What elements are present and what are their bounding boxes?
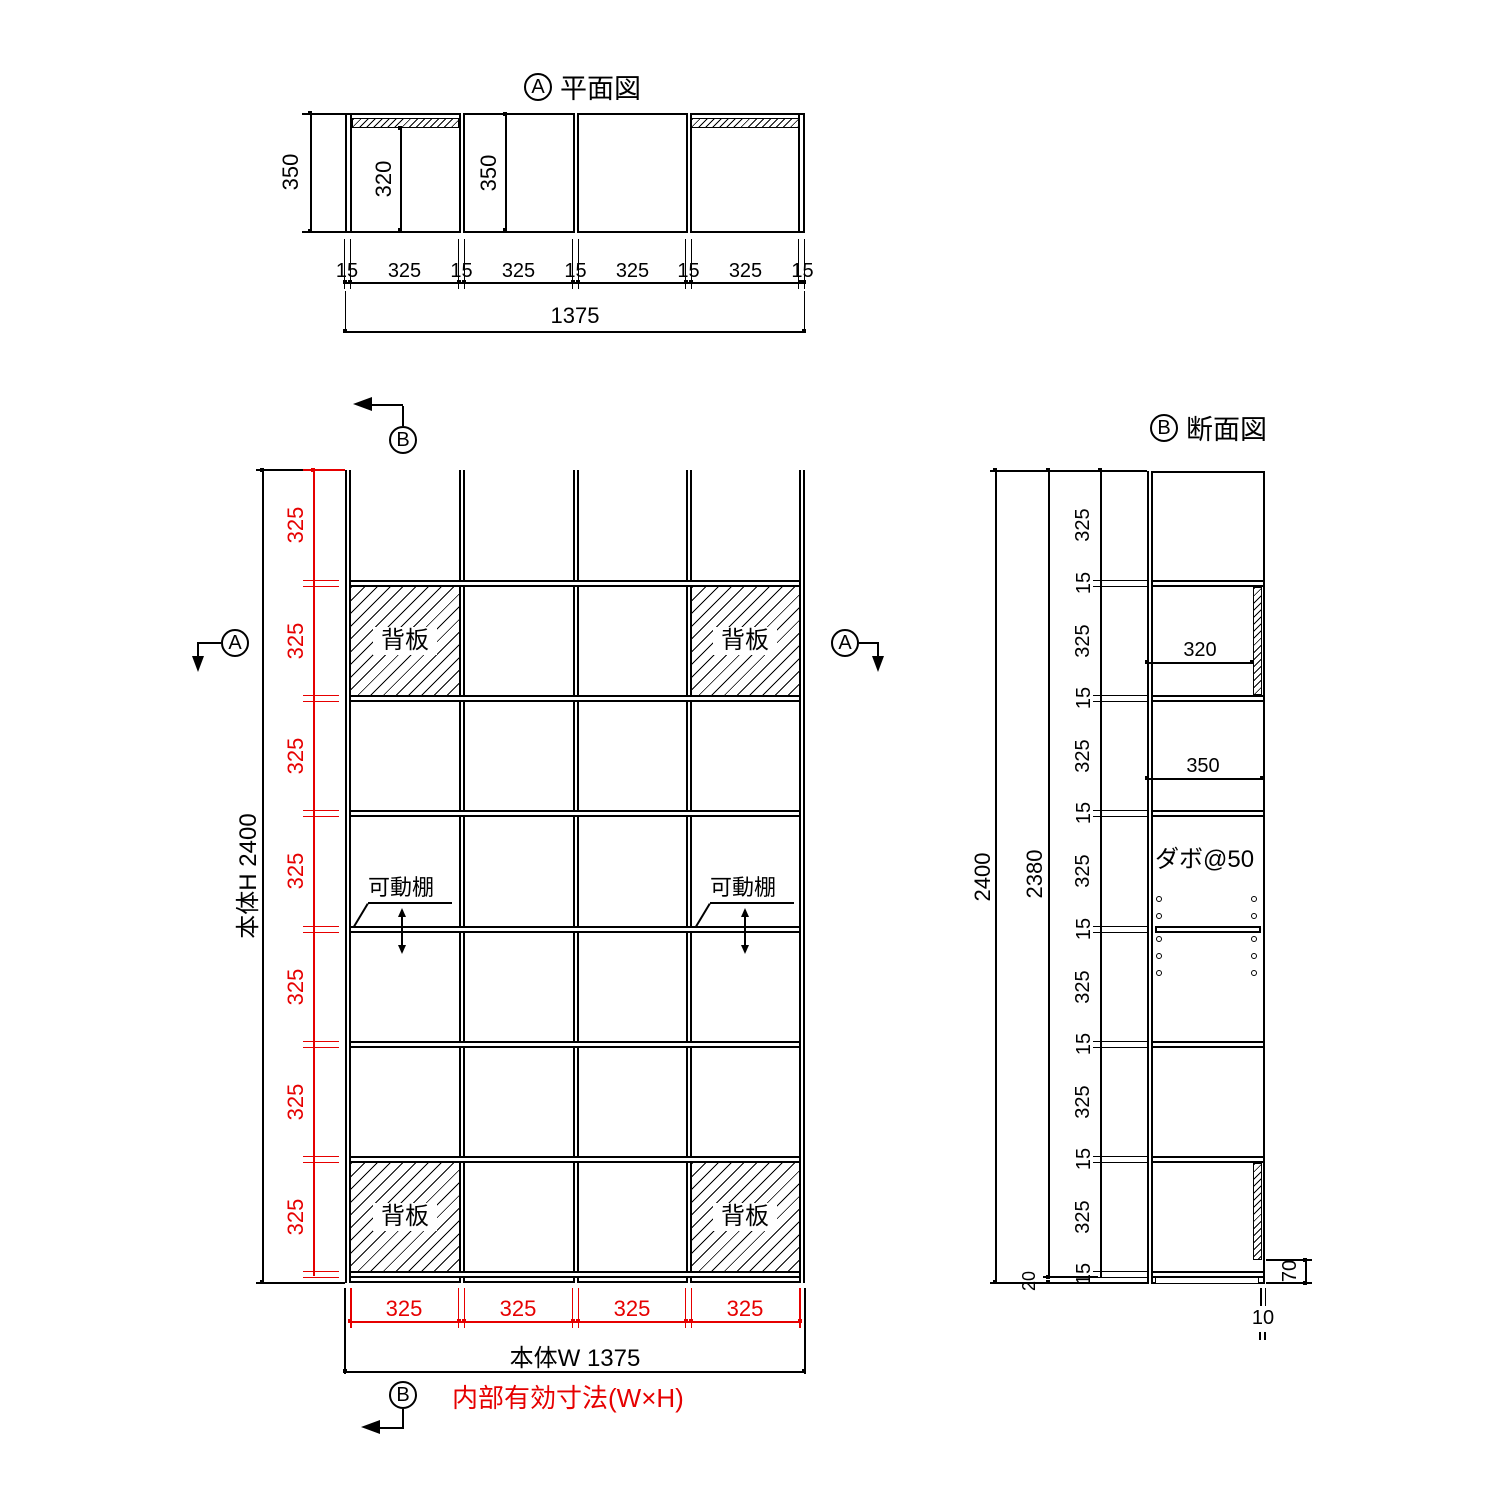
dim-line (400, 128, 402, 232)
section-shelf-dim: 15 (1073, 680, 1093, 716)
back-panel-label: 背板 (713, 1203, 777, 1231)
section-base-plinth (1155, 1277, 1259, 1284)
plan-partition (686, 113, 692, 233)
dowel-hole-icon (1251, 970, 1257, 976)
technical-drawing-canvas: A 平面図 350 320 350 15 325 15 325 15 325 1… (0, 0, 1500, 1500)
section-shelf-dim: 15 (1073, 1026, 1093, 1062)
ext-line (804, 1288, 806, 1374)
ext-line (990, 1282, 1147, 1284)
plan-chain-dim: 325 (374, 260, 435, 283)
elevation-shelf-movable (351, 926, 799, 933)
elevation-row-dim: 325 (283, 495, 305, 555)
tick-red (571, 1319, 575, 1323)
elevation-dim-width-overall: 本体W 1375 (495, 1345, 655, 1373)
section-title-marker-icon: B (1150, 414, 1178, 442)
tick-red (798, 1319, 802, 1323)
ext-line-pair (1093, 580, 1147, 587)
elevation-dim-height-overall: 本体H 2400 (235, 806, 259, 946)
ext-line-pair-red (303, 926, 339, 933)
ext-line-pair-red (303, 1041, 339, 1048)
tick (503, 228, 507, 232)
marker-line (197, 642, 199, 657)
tick (1260, 776, 1264, 780)
ext-line (1265, 1288, 1267, 1306)
dowel-hole-icon (1251, 936, 1257, 942)
dowel-hole-icon (1156, 896, 1162, 902)
ext-line-pair (1093, 926, 1147, 933)
elevation-row-dim: 325 (283, 611, 305, 671)
elevation-side-panel (799, 470, 805, 1283)
section-shelf (1153, 1041, 1263, 1048)
dowel-hole-icon (1251, 913, 1257, 919)
tick (1098, 468, 1102, 472)
tick (260, 1280, 264, 1284)
tick (1303, 1258, 1307, 1262)
section-shelf (1153, 580, 1263, 587)
ext-line (256, 1282, 345, 1284)
section-row-dim: 325 (1072, 1187, 1094, 1247)
section-shelf-movable (1155, 926, 1261, 933)
elevation-row-dim: 325 (283, 841, 305, 901)
section-marker-a-right-icon: A (831, 629, 859, 657)
section-dim-height-inner: 2380 (1022, 834, 1044, 914)
ext-line-pair-red (303, 810, 339, 817)
dowel-hole-icon (1156, 913, 1162, 919)
dim-line (1147, 778, 1264, 780)
plan-chain-dim: 15 (673, 260, 704, 283)
ext-line (345, 291, 347, 333)
tick (503, 112, 507, 116)
section-dim-bottom-panel: 20 (1019, 1261, 1039, 1301)
tick (802, 1369, 806, 1373)
section-row-dim: 325 (1072, 957, 1094, 1017)
section-row-dim: 325 (1072, 1072, 1094, 1132)
dim-line (310, 113, 312, 233)
section-title: 断面図 (1186, 415, 1267, 446)
section-dim-depth-inner: 350 (1160, 755, 1246, 778)
dowel-hole-icon (1156, 970, 1162, 976)
plan-chain-dim: 15 (787, 260, 818, 283)
tick (308, 111, 312, 115)
elevation-row-dim: 325 (283, 1072, 305, 1132)
plan-chain-dim: 325 (602, 260, 663, 283)
plan-back-panel-hatch (352, 118, 459, 128)
plan-side-inner-line (798, 113, 800, 233)
plan-partition (459, 113, 465, 233)
leader-line (353, 903, 369, 928)
elevation-row-dim: 325 (283, 957, 305, 1017)
section-back-panel-hatch (1253, 587, 1262, 695)
movable-shelf-label: 可動棚 (710, 875, 794, 904)
dowel-hole-icon (1251, 896, 1257, 902)
ext-line-pair (1093, 1041, 1147, 1048)
elevation-col-dim: 325 (602, 1296, 662, 1321)
tick-red (311, 468, 315, 472)
tick-red (576, 1319, 580, 1323)
section-arrow-left-icon (361, 1420, 380, 1434)
ext-line-pair (1093, 810, 1147, 817)
ext-line-pair (1093, 1271, 1147, 1278)
dowel-hole-icon (1156, 936, 1162, 942)
ext-line-pair-red (303, 1156, 339, 1163)
marker-line (402, 1409, 404, 1428)
tick (398, 126, 402, 130)
section-back-panel-hatch (1253, 1163, 1262, 1260)
section-row-dim: 325 (1072, 841, 1094, 901)
arrow-up-icon (398, 908, 406, 917)
section-shelf (1153, 1271, 1263, 1278)
tick-red (689, 1319, 693, 1323)
dim-line (1147, 662, 1254, 664)
dowel-hole-icon (1251, 953, 1257, 959)
section-shelf-dim: 15 (1073, 911, 1093, 947)
tick-mark (1264, 1332, 1266, 1340)
plan-dim-depth-overall: 350 (278, 142, 300, 202)
section-marker-a-left-icon: A (221, 629, 249, 657)
dim-line (505, 114, 507, 232)
tick (343, 1369, 347, 1373)
ext-line-pair-red (303, 580, 339, 587)
section-shelf-dim: 15 (1073, 1141, 1093, 1177)
section-row-dim: 325 (1072, 495, 1094, 555)
tick (993, 468, 997, 472)
elevation-shelf (351, 1156, 799, 1163)
plan-back-panel-hatch (691, 118, 799, 128)
section-back-edge (1263, 471, 1265, 1284)
section-dim-height-overall: 2400 (970, 837, 992, 917)
plan-dim-depth-inner: 350 (476, 143, 498, 203)
arrow-down-icon (398, 945, 406, 954)
tick-mark (1259, 1332, 1261, 1340)
ext-line-pair (1093, 695, 1147, 702)
arrow-down-icon (741, 945, 749, 954)
plan-chain-dim: 15 (332, 260, 362, 283)
tick (802, 329, 806, 333)
section-row-dim: 325 (1072, 611, 1094, 671)
plan-chain-dim: 325 (715, 260, 776, 283)
section-shelf (1153, 695, 1263, 702)
ext-line (804, 291, 806, 333)
tick-red (457, 1319, 461, 1323)
section-arrow-down-icon (192, 656, 204, 672)
section-shelf (1153, 1156, 1263, 1163)
dowel-pitch-note: ダボ@50 (1155, 846, 1254, 874)
plan-chain-dim: 325 (488, 260, 549, 283)
marker-line (402, 406, 404, 426)
section-arrow-down-icon (872, 656, 884, 672)
elevation-row-dim: 325 (283, 726, 305, 786)
elevation-col-dim: 325 (374, 1296, 434, 1321)
tick (1145, 660, 1149, 664)
tick (398, 228, 402, 232)
tick (1303, 1281, 1307, 1285)
elevation-shelf (351, 1041, 799, 1048)
ext-line (344, 1288, 346, 1374)
plan-title: 平面図 (560, 74, 641, 105)
section-marker-b-bottom-icon: B (389, 1381, 417, 1409)
ext-line-pair-red (303, 695, 339, 702)
elevation-col-dim: 325 (715, 1296, 775, 1321)
plan-side-inner-line (350, 113, 352, 233)
dim-line (995, 471, 997, 1284)
plan-dim-back-clearance: 320 (371, 149, 393, 209)
section-marker-b-top-icon: B (389, 426, 417, 454)
tick (343, 329, 347, 333)
movable-shelf-label: 可動棚 (368, 875, 452, 904)
plan-chain-dim: 15 (560, 260, 591, 283)
marker-line (380, 1427, 404, 1429)
section-shelf-dim: 15 (1073, 795, 1093, 831)
tick-red (348, 1319, 352, 1323)
back-panel-label: 背板 (373, 1203, 437, 1231)
section-dim-back-gap: 10 (1243, 1307, 1283, 1330)
arrow-up-icon (741, 908, 749, 917)
elevation-shelf (351, 695, 799, 702)
plan-marker-icon: A (524, 73, 552, 101)
marker-line (372, 404, 403, 406)
plan-dim-width-overall: 1375 (515, 303, 635, 328)
dim-line (1048, 471, 1050, 1277)
ext-line (990, 470, 1147, 472)
tick (308, 229, 312, 233)
section-shelf-dim: 15 (1073, 1256, 1093, 1292)
tick (1046, 1275, 1050, 1279)
plan-partition (573, 113, 579, 233)
section-dim-base-height: 70 (1279, 1251, 1299, 1291)
elevation-shelf (351, 810, 799, 817)
tick (1046, 1280, 1050, 1284)
section-dim-back-clearance: 320 (1157, 639, 1243, 662)
tick (1145, 776, 1149, 780)
tick (1046, 468, 1050, 472)
dowel-hole-icon (1156, 953, 1162, 959)
section-shelf-dim: 15 (1073, 565, 1093, 601)
elevation-col-dim: 325 (488, 1296, 548, 1321)
ext-line-pair (1093, 1156, 1147, 1163)
tick (260, 468, 264, 472)
elevation-shelf (351, 1271, 799, 1278)
tick-red (684, 1319, 688, 1323)
marker-line (877, 642, 879, 657)
elevation-row-dim: 325 (283, 1187, 305, 1247)
marker-line (859, 642, 879, 644)
elevation-shelf (351, 580, 799, 587)
marker-line (198, 642, 221, 644)
section-row-dim: 325 (1072, 726, 1094, 786)
tick (1250, 660, 1254, 664)
section-arrow-left-icon (353, 397, 372, 411)
dim-line (262, 470, 264, 1283)
section-shelf (1153, 810, 1263, 817)
ext-line (1260, 1288, 1262, 1306)
section-top-edge (1147, 471, 1265, 473)
internal-dims-note: 内部有効寸法(W×H) (452, 1384, 684, 1414)
tick (993, 1280, 997, 1284)
plan-chain-dim: 15 (446, 260, 477, 283)
dim-line (345, 331, 805, 333)
leader-line (695, 903, 711, 928)
tick-red (462, 1319, 466, 1323)
ext-line-pair-red (303, 1271, 339, 1278)
ext-line-red (303, 469, 345, 471)
back-panel-label: 背板 (713, 627, 777, 655)
back-panel-label: 背板 (373, 627, 437, 655)
